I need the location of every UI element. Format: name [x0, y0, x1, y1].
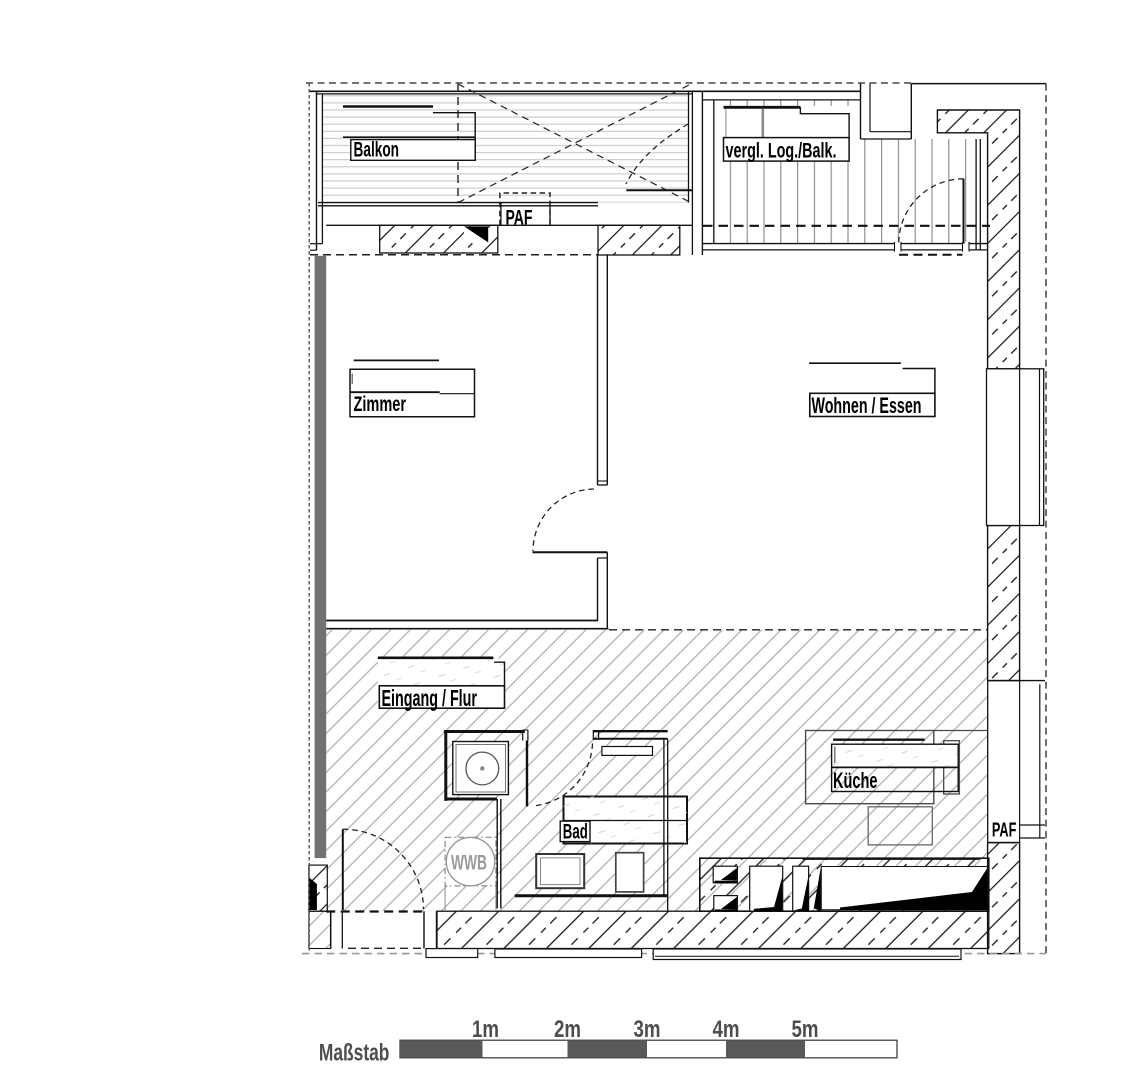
svg-text:3m: 3m	[634, 1016, 661, 1043]
svg-text:Wohnen / Essen: Wohnen / Essen	[812, 393, 922, 418]
svg-text:Maßstab: Maßstab	[319, 1040, 390, 1067]
svg-text:1m: 1m	[472, 1016, 499, 1043]
svg-text:Eingang / Flur: Eingang / Flur	[382, 685, 478, 711]
svg-text:vergl. Log./Balk.: vergl. Log./Balk.	[726, 139, 837, 162]
svg-text:Bad: Bad	[563, 821, 588, 844]
svg-text:2m: 2m	[554, 1016, 581, 1043]
svg-text:PAF: PAF	[992, 820, 1017, 842]
svg-text:4m: 4m	[713, 1016, 740, 1043]
svg-text:WWB: WWB	[451, 851, 487, 874]
svg-text:Zimmer: Zimmer	[354, 393, 407, 416]
svg-text:Küche: Küche	[833, 768, 878, 793]
svg-text:5m: 5m	[792, 1016, 819, 1043]
svg-text:Balkon: Balkon	[354, 138, 400, 161]
svg-text:PAF: PAF	[506, 205, 533, 229]
